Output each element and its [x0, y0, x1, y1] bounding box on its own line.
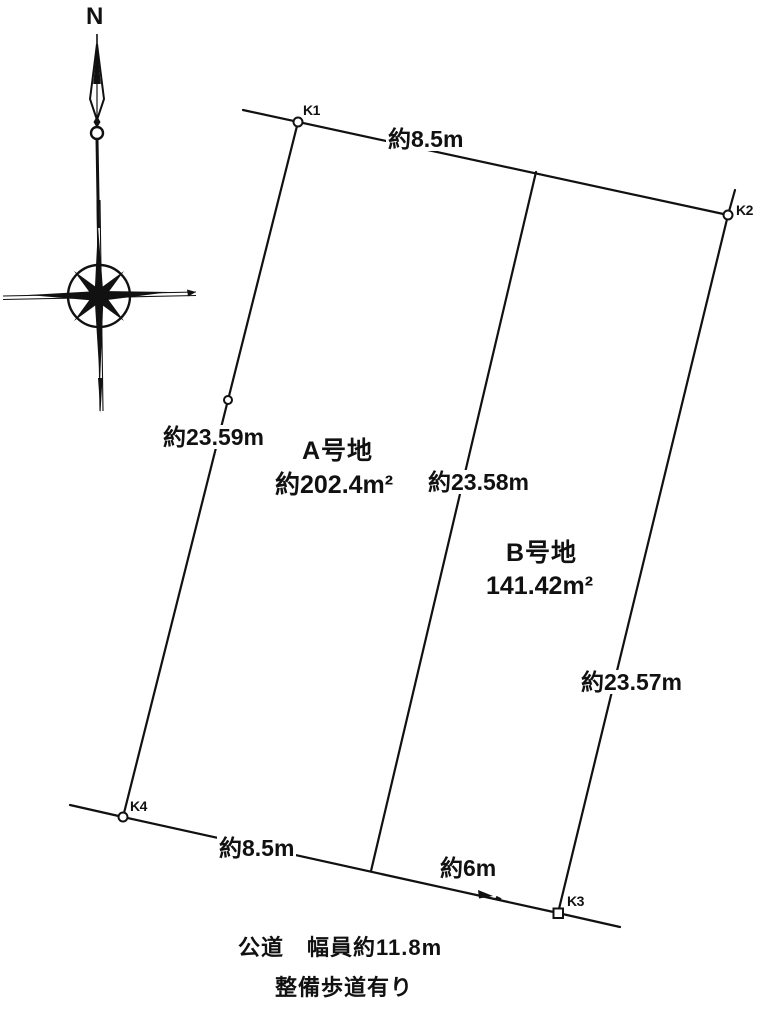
point-label-k4: K4 [130, 799, 147, 814]
parcel-b-name: B号地 [506, 540, 577, 566]
site-plan-drawing [0, 0, 765, 1013]
marker-left-midpoint [224, 396, 232, 404]
parcel-a-name: A号地 [302, 438, 373, 464]
point-label-k2: K2 [736, 203, 753, 218]
parcel-divider-line [371, 172, 536, 871]
dimension-label-top: 約8.5m [386, 127, 465, 151]
compass-ray-north [95, 226, 104, 296]
dimension-label-bottom-center: 約6m [438, 856, 498, 880]
compass-center-hub [93, 290, 106, 303]
marker-k2 [724, 211, 733, 220]
parcel-a-area: 約202.4m² [275, 472, 393, 498]
site-plan: N K1 K2 K3 K4 約8.5m 約23.59m 約23.58m 約23.… [0, 0, 765, 1013]
parcel-b-area: 141.42m² [486, 573, 593, 599]
survey-point-markers [119, 118, 733, 919]
road-type-and-width: 公道 幅員約11.8m [238, 936, 442, 959]
compass-ornament-ring [91, 127, 103, 139]
point-label-k3: K3 [567, 894, 584, 909]
compass-ray-west [28, 291, 99, 301]
dimension-label-left: 約23.59m [161, 425, 266, 449]
dimension-label-center: 約23.58m [426, 470, 531, 494]
north-label: N [86, 4, 103, 29]
boundary-top [243, 110, 728, 215]
dimension-label-bottom-left: 約8.5m [217, 836, 296, 860]
point-label-k1: K1 [303, 103, 320, 118]
north-compass-icon [3, 34, 196, 413]
marker-k3 [554, 909, 564, 919]
marker-k4 [119, 813, 128, 822]
compass-tail [98, 378, 103, 413]
boundary-bottom-road-edge [70, 805, 620, 927]
boundary-left [123, 122, 298, 817]
dimension-label-right: 約23.57m [579, 670, 684, 694]
marker-k1 [294, 118, 303, 127]
boundary-right [558, 190, 735, 913]
parcel-boundaries [70, 110, 735, 927]
sidewalk-note: 整備歩道有り [275, 976, 413, 999]
